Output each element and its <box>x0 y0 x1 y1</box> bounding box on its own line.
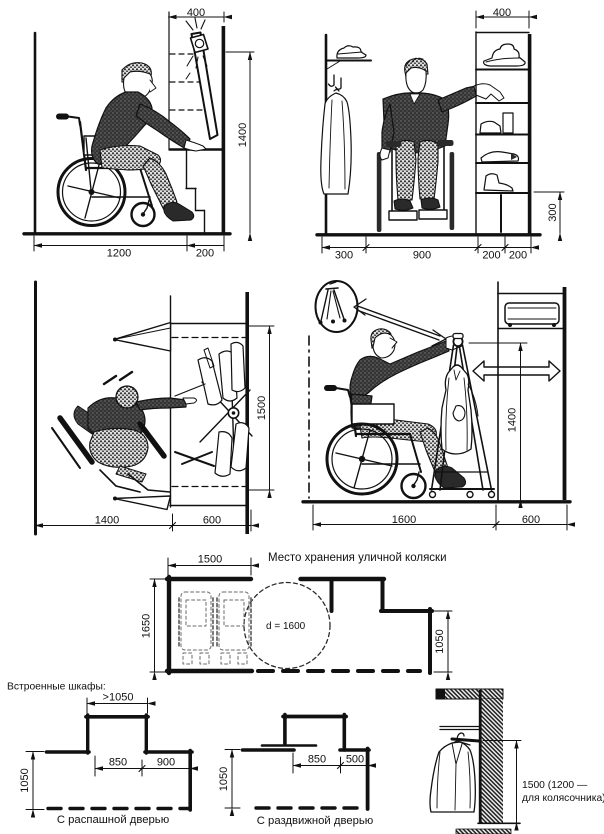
svg-text:500: 500 <box>346 754 364 766</box>
svg-text:1050: 1050 <box>19 768 31 792</box>
svg-text:400: 400 <box>493 7 511 19</box>
svg-text:1500: 1500 <box>256 396 268 420</box>
svg-text:1400: 1400 <box>237 123 249 147</box>
svg-text:1400: 1400 <box>95 515 119 527</box>
svg-text:1500 (1200 —: 1500 (1200 — <box>522 780 588 791</box>
svg-text:Встроенные шкафы:: Встроенные шкафы: <box>7 681 106 693</box>
svg-text:850: 850 <box>109 757 127 769</box>
svg-text:850: 850 <box>308 754 326 766</box>
svg-text:1200: 1200 <box>107 248 131 260</box>
svg-text:С распашной дверью: С распашной дверью <box>57 814 169 826</box>
svg-text:1500: 1500 <box>198 554 222 566</box>
svg-text:900: 900 <box>413 250 431 262</box>
svg-text:200: 200 <box>196 248 214 260</box>
svg-text:d = 1600: d = 1600 <box>266 621 306 632</box>
svg-text:300: 300 <box>547 203 559 221</box>
svg-text:С раздвижной дверью: С раздвижной дверью <box>257 815 374 827</box>
svg-text:1050: 1050 <box>218 767 230 791</box>
svg-text:Место хранения уличной коляски: Место хранения уличной коляски <box>268 552 447 564</box>
svg-text:>1050: >1050 <box>103 692 134 704</box>
svg-text:1050: 1050 <box>434 629 446 653</box>
svg-text:300: 300 <box>335 250 353 262</box>
svg-text:1650: 1650 <box>141 614 153 638</box>
svg-text:1600: 1600 <box>392 514 416 526</box>
svg-text:900: 900 <box>157 757 175 769</box>
svg-text:600: 600 <box>203 515 221 527</box>
svg-text:1400: 1400 <box>507 408 519 432</box>
svg-text:400: 400 <box>187 7 205 19</box>
svg-text:200: 200 <box>482 250 500 262</box>
svg-text:200: 200 <box>509 250 527 262</box>
svg-text:для колясочника): для колясочника) <box>522 793 604 804</box>
svg-text:600: 600 <box>522 514 540 526</box>
